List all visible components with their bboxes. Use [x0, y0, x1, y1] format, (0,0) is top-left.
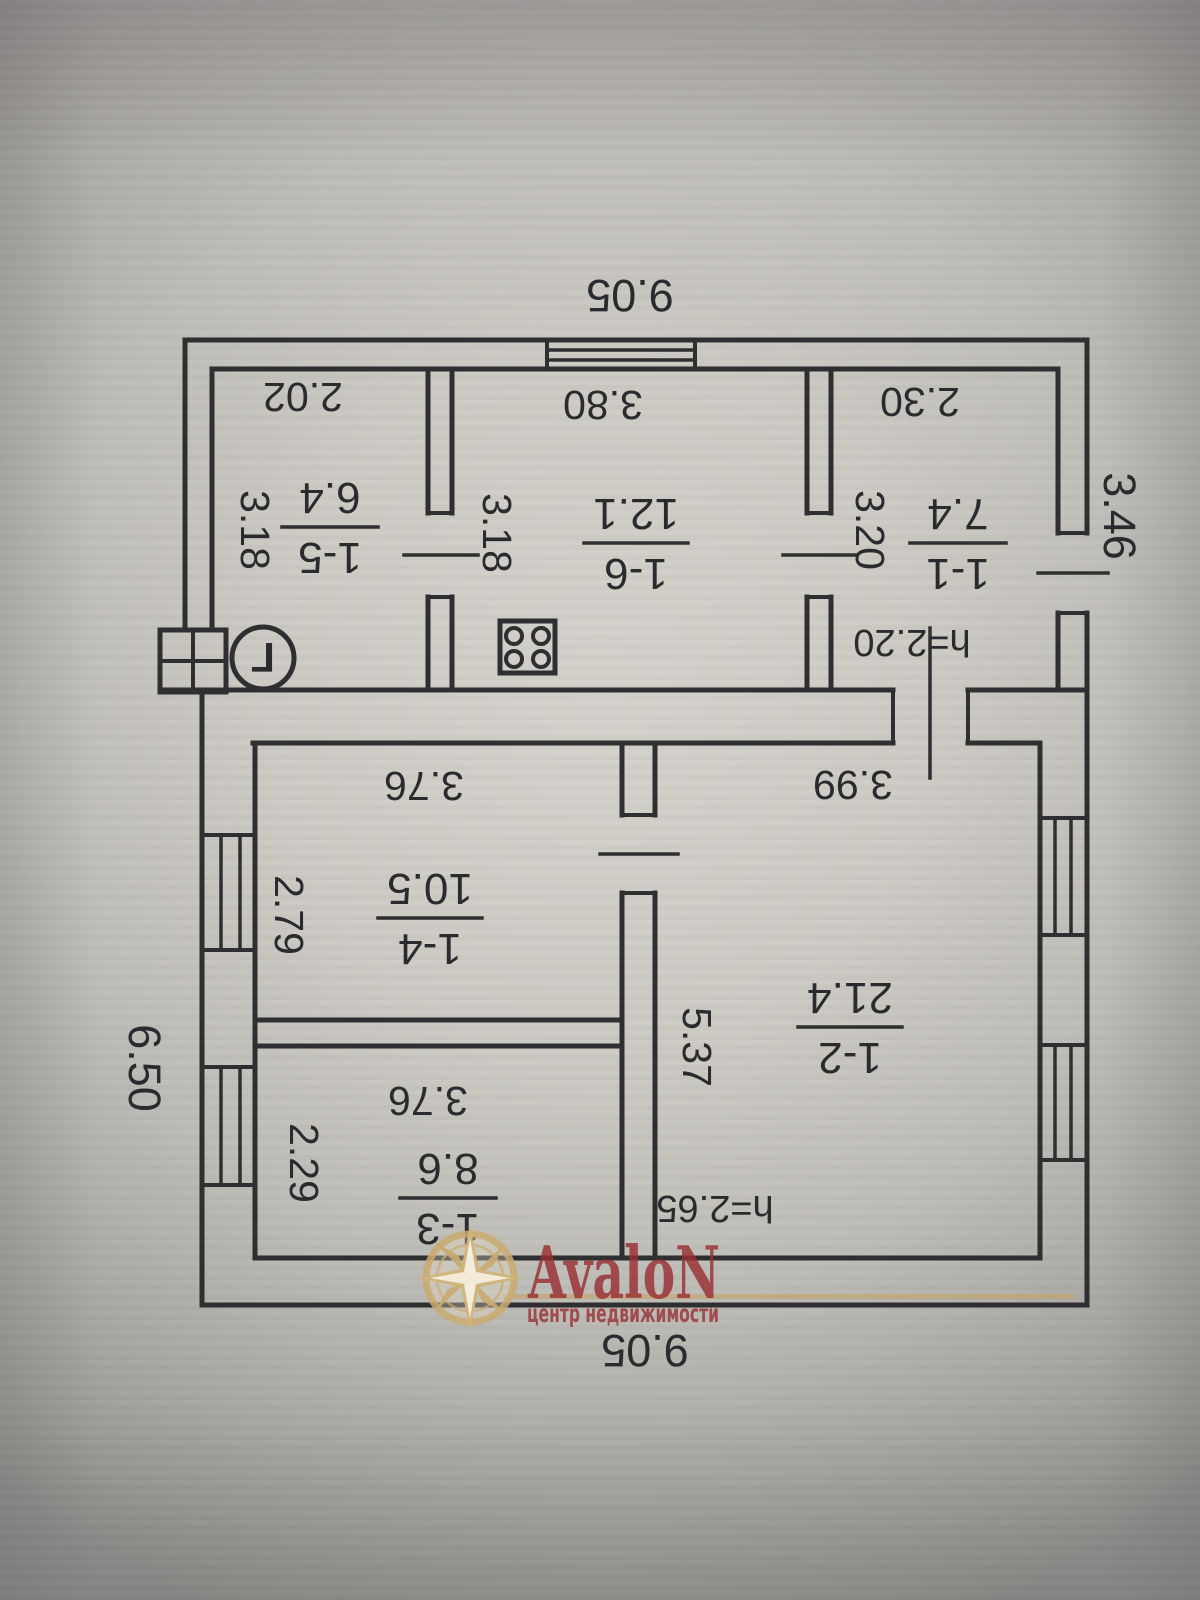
room-1-2-area: 21.4	[807, 973, 893, 1022]
label-room-1-4: 1-4 10.5	[378, 864, 482, 973]
dim-room-1-4-width: 3.76	[384, 763, 464, 809]
middle-wall	[600, 743, 678, 1258]
window-room-1-2-lower	[1040, 1045, 1087, 1160]
label-room-1-5: 1-5 6.4	[282, 473, 378, 582]
window-room-1-3	[202, 1067, 255, 1185]
label-room-1-6: 1-6 12.1	[584, 489, 688, 598]
floor-plan-photo: Г 9.05 9.05 6.50 3.46 2.02 3.18 1-5 6.4 …	[0, 0, 1200, 1600]
ceiling-height-main: h=2.65	[656, 1187, 773, 1229]
partition-1-5-1-6	[404, 369, 478, 690]
gas-stove-icon	[500, 621, 555, 673]
room-1-2-number: 1-2	[818, 1033, 882, 1082]
dim-room-1-6-width: 3.80	[563, 382, 643, 428]
ceiling-height-annex: h=2.20	[853, 621, 970, 663]
watermark: AvaloN центр недвижимости	[418, 1226, 1075, 1330]
dim-room-1-1-width: 2.30	[880, 379, 960, 425]
label-room-1-2: 1-2 21.4	[798, 973, 902, 1082]
vent-shaft-icon	[160, 630, 226, 692]
room-1-4-area: 10.5	[387, 864, 473, 913]
window-room-1-6	[547, 340, 695, 369]
room-1-1-number: 1-1	[926, 549, 990, 598]
dim-room-1-4-depth: 2.79	[266, 875, 312, 955]
label-room-1-1: 1-1 7.4	[910, 489, 1006, 598]
dim-room-1-1-depth: 3.20	[847, 490, 893, 570]
gas-meter-letter: Г	[251, 634, 275, 681]
room-1-6-number: 1-6	[604, 549, 668, 598]
dim-room-1-3-depth: 2.29	[281, 1123, 327, 1203]
room-1-1-area: 7.4	[927, 489, 988, 538]
dim-room-1-5-width: 2.02	[263, 374, 343, 420]
dim-right-annex: 3.46	[1094, 472, 1145, 560]
room-1-6-area: 12.1	[593, 489, 679, 538]
window-room-1-4	[202, 835, 255, 950]
dim-room-1-3-width: 3.76	[388, 1078, 468, 1124]
window-room-1-2-upper	[1040, 818, 1087, 935]
room-1-5-number: 1-5	[298, 533, 362, 582]
dim-room-1-2-width: 3.99	[813, 762, 893, 808]
dim-room-1-6-depth: 3.18	[474, 493, 520, 573]
partition-1-6-1-1	[783, 369, 857, 690]
partition-1-4-1-3	[255, 1020, 622, 1046]
floor-plan-drawing: Г 9.05 9.05 6.50 3.46 2.02 3.18 1-5 6.4 …	[0, 0, 1200, 1600]
watermark-tagline: центр недвижимости	[527, 1299, 719, 1328]
gas-meter-icon: Г	[232, 627, 294, 689]
dim-left-height: 6.50	[119, 1024, 170, 1112]
dim-room-1-5-depth: 3.18	[232, 490, 278, 570]
room-1-3-area: 8.6	[417, 1144, 478, 1193]
room-1-5-area: 6.4	[299, 473, 360, 522]
dim-bottom-width: 9.05	[601, 1325, 689, 1376]
room-1-4-number: 1-4	[398, 924, 462, 973]
dim-room-1-2-depth: 5.37	[674, 1007, 720, 1087]
dim-top-width: 9.05	[586, 270, 674, 321]
